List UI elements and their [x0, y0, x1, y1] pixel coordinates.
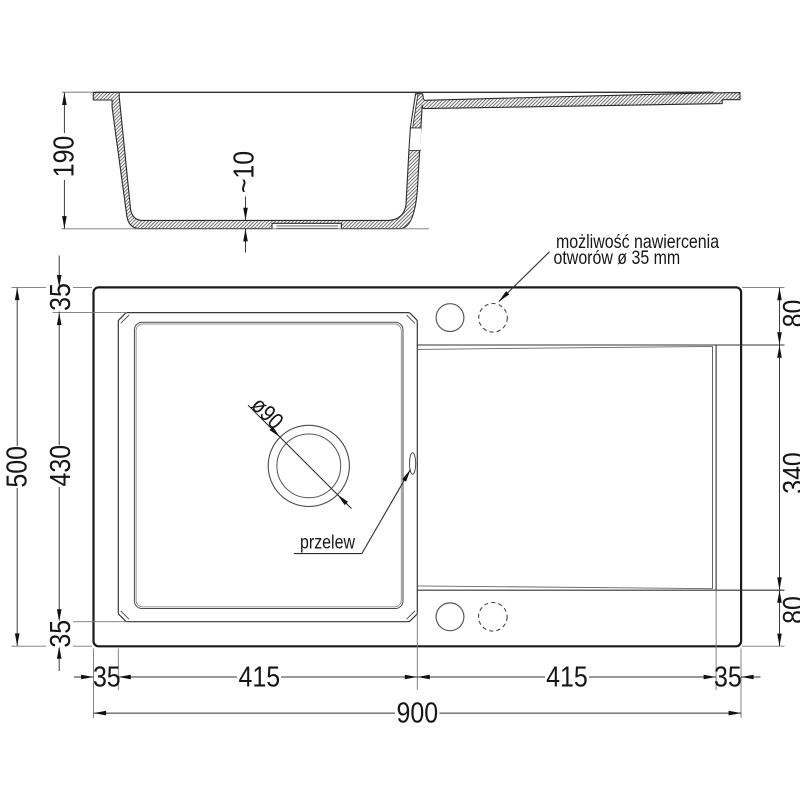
- svg-text:190: 190: [48, 136, 80, 178]
- svg-text:500: 500: [1, 446, 33, 488]
- svg-text:430: 430: [44, 445, 76, 487]
- svg-text:415: 415: [239, 661, 281, 693]
- svg-text:otworów ø 35 mm: otworów ø 35 mm: [554, 247, 681, 269]
- svg-text:przelew: przelew: [300, 531, 355, 553]
- svg-text:35: 35: [44, 283, 76, 311]
- svg-text:415: 415: [546, 661, 588, 693]
- svg-text:35: 35: [93, 661, 121, 693]
- svg-text:80: 80: [777, 300, 800, 328]
- svg-text:340: 340: [777, 452, 800, 494]
- svg-text:35: 35: [44, 620, 76, 648]
- svg-text:~10: ~10: [228, 151, 260, 193]
- svg-text:900: 900: [397, 697, 439, 729]
- svg-text:35: 35: [714, 661, 742, 693]
